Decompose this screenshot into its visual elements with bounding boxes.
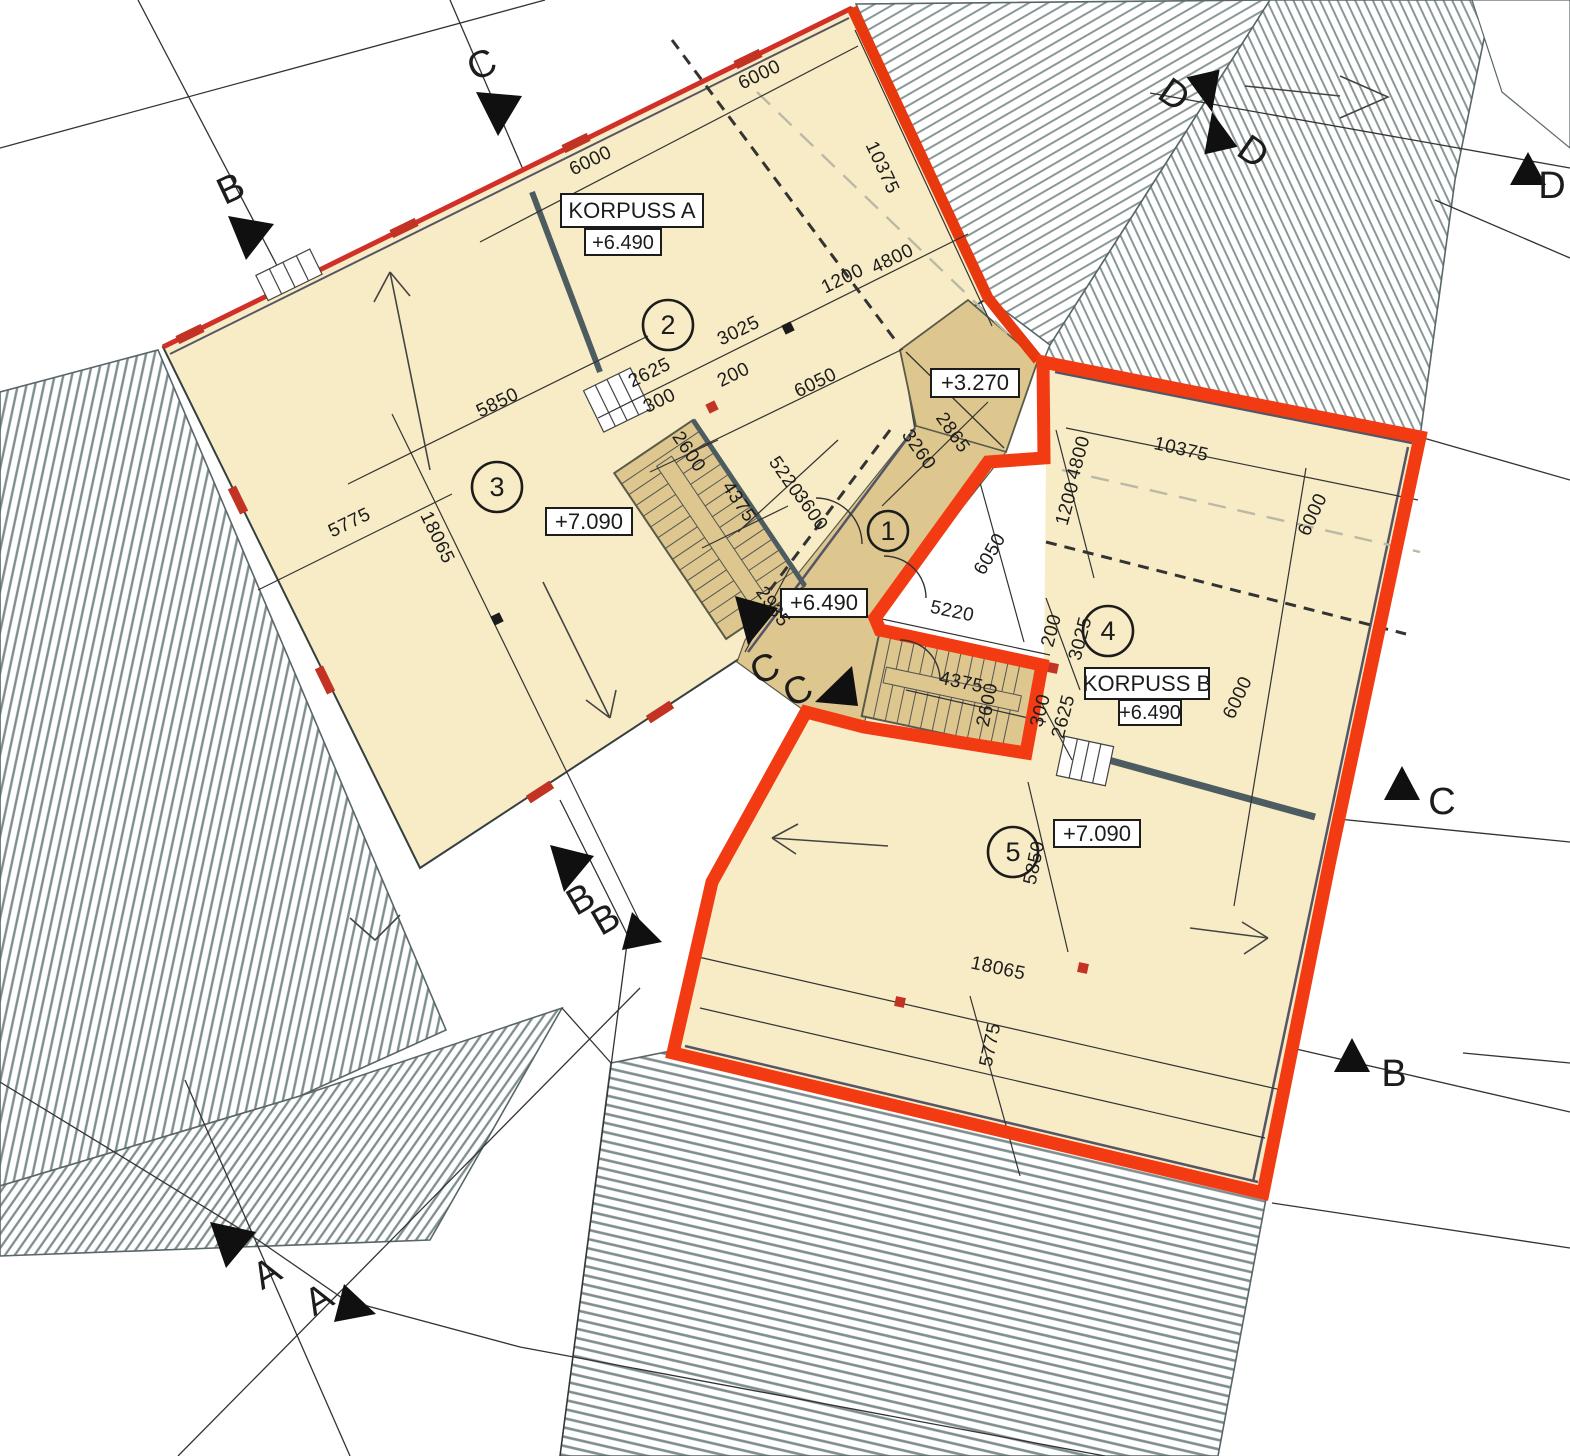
floor-plan: C B D D D C C B B C B A A KORPUSS A +6.4… — [0, 0, 1570, 1456]
korpuss-a-title: KORPUSS A — [568, 198, 695, 223]
zone3-elevation: +7.090 — [555, 509, 623, 534]
zone-2: 2 — [660, 310, 675, 340]
zone-3: 3 — [489, 472, 504, 502]
section-b-right-label: B — [1381, 1053, 1406, 1095]
zone5-elevation: +7.090 — [1063, 821, 1131, 846]
section-c-right-label: C — [1428, 781, 1455, 823]
section-d-right-label: D — [1538, 165, 1565, 207]
floor-plan-svg: C B D D D C C B B C B A A KORPUSS A +6.4… — [0, 0, 1570, 1456]
hall-elevation: +6.490 — [790, 590, 858, 615]
korpuss-b-title: KORPUSS B — [1083, 671, 1211, 696]
korpuss-a-elevation: +6.490 — [592, 232, 654, 254]
zone-1: 1 — [880, 516, 895, 546]
zone-4: 4 — [1100, 616, 1115, 646]
zone-5: 5 — [1005, 837, 1020, 867]
korpuss-b-elevation: +6.490 — [1119, 702, 1181, 724]
plaza-elevation: +3.270 — [941, 370, 1009, 395]
